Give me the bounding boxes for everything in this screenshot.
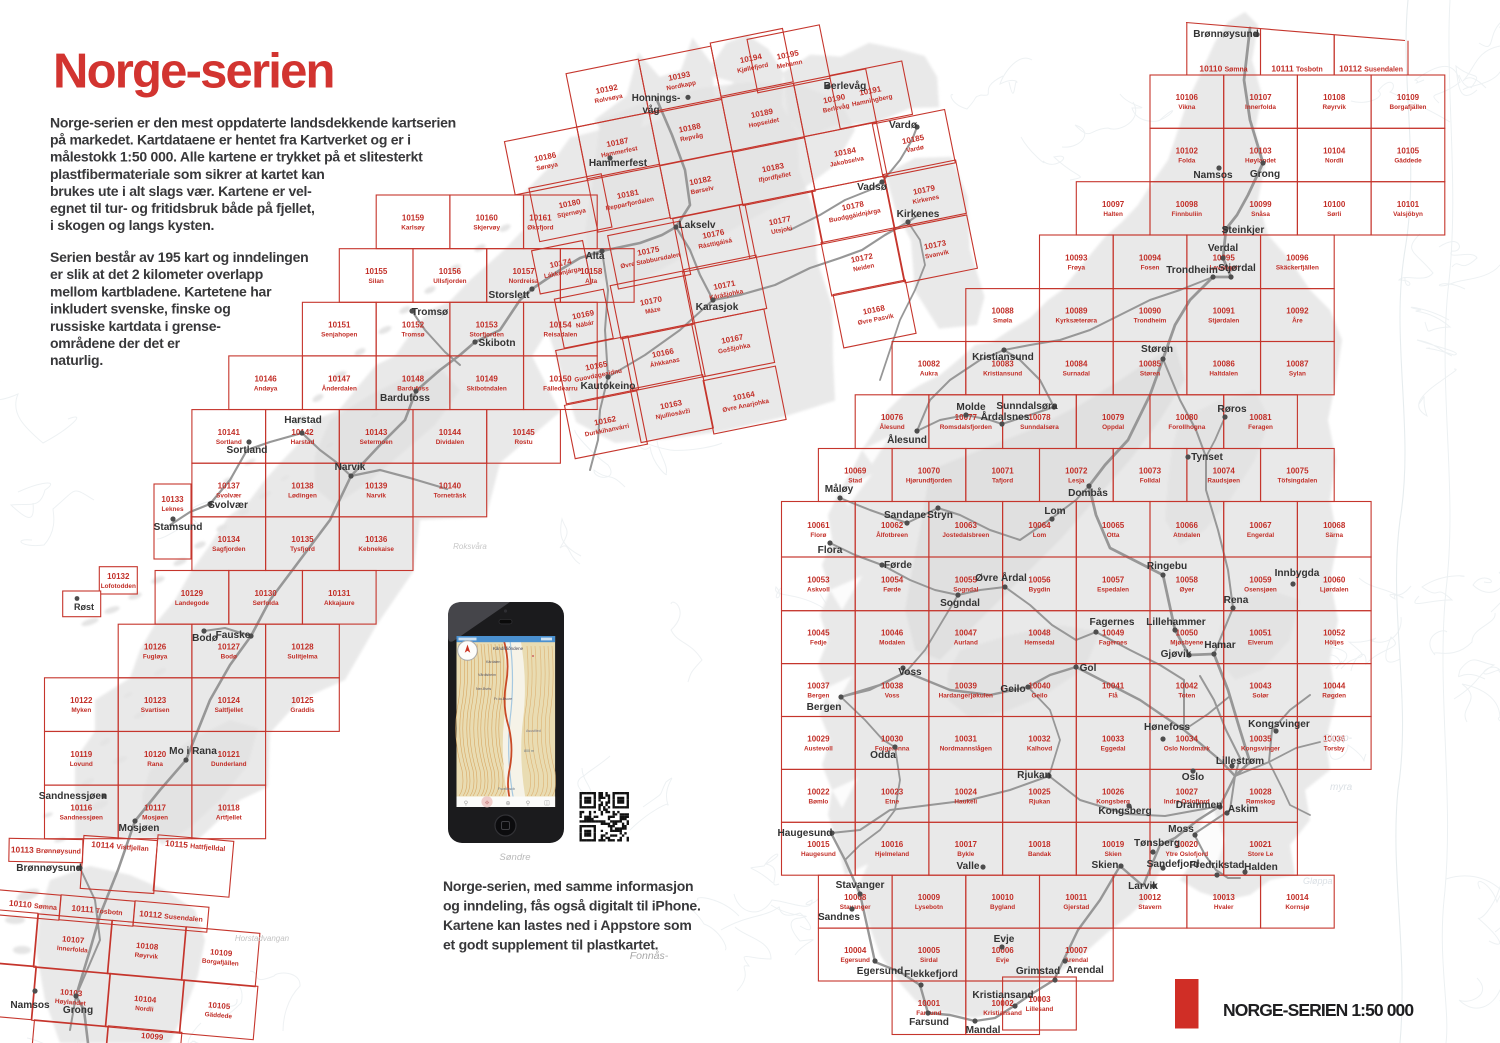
svg-text:Berlevåg: Berlevåg [824, 80, 867, 92]
svg-text:Serien består av 195 kart og i: Serien består av 195 kart og inndelingen [50, 249, 308, 265]
svg-text:10017: 10017 [955, 840, 978, 849]
svg-text:Trondheim: Trondheim [1134, 318, 1167, 325]
svg-text:Bygland: Bygland [990, 904, 1015, 911]
svg-text:10021: 10021 [1249, 840, 1272, 849]
svg-text:Flora: Flora [818, 545, 843, 556]
svg-text:Espedalen: Espedalen [1097, 586, 1129, 593]
svg-text:10028: 10028 [1249, 787, 1272, 796]
svg-text:10140: 10140 [439, 482, 462, 491]
svg-text:Førde: Førde [884, 560, 912, 571]
svg-text:Torsby: Torsby [1324, 746, 1345, 753]
svg-text:Fr-to-Bsure: Fr-to-Bsure [494, 697, 512, 701]
svg-text:Tønsberg: Tønsberg [1134, 838, 1180, 849]
svg-text:Senjahopen: Senjahopen [321, 332, 357, 339]
svg-text:Sunndalsøra: Sunndalsøra [1020, 424, 1059, 431]
svg-text:10064: 10064 [1028, 521, 1051, 530]
svg-text:Åre: Åre [1292, 316, 1303, 325]
svg-text:Hardangerjøkulen: Hardangerjøkulen [939, 693, 993, 700]
svg-text:Lakselv: Lakselv [678, 220, 715, 231]
svg-text:Skibotn: Skibotn [478, 338, 515, 349]
svg-text:Bodø: Bodø [221, 654, 237, 661]
svg-text:Drammen: Drammen [1176, 800, 1223, 811]
svg-text:10124: 10124 [218, 696, 241, 705]
svg-text:Ånderdalen: Ånderdalen [322, 383, 357, 392]
svg-text:Artfjellet: Artfjellet [216, 815, 243, 822]
svg-text:i skogen og langs kysten.: i skogen og langs kysten. [50, 217, 214, 233]
svg-text:og inndeling, fås også digital: og inndeling, fås også digitalt til iPho… [443, 898, 701, 914]
svg-text:Lillesand: Lillesand [1026, 1006, 1054, 1013]
svg-text:Bergen: Bergen [807, 702, 842, 713]
svg-text:10156: 10156 [439, 267, 462, 276]
svg-text:Sørli: Sørli [1327, 211, 1341, 218]
svg-text:Atndalen: Atndalen [1173, 532, 1200, 539]
svg-text:Kalhovd: Kalhovd [1027, 746, 1052, 753]
svg-text:10058: 10058 [1176, 575, 1199, 584]
svg-text:10151: 10151 [328, 321, 351, 330]
svg-text:Fredrikstad: Fredrikstad [1190, 860, 1245, 871]
svg-text:våg: våg [643, 105, 660, 116]
svg-text:10056: 10056 [1028, 575, 1051, 584]
svg-text:10130: 10130 [254, 589, 277, 598]
svg-text:Voss: Voss [885, 693, 900, 700]
svg-text:Nordmannslågen: Nordmannslågen [940, 745, 992, 753]
svg-text:Støren: Støren [1141, 344, 1173, 355]
svg-text:Hemsedal: Hemsedal [1024, 640, 1054, 647]
svg-text:10098: 10098 [1176, 200, 1199, 209]
svg-text:Skjervøy: Skjervøy [473, 224, 500, 231]
svg-text:Rena: Rena [1224, 595, 1249, 606]
svg-text:10015: 10015 [807, 840, 830, 849]
svg-text:Lom: Lom [1033, 532, 1047, 539]
svg-text:Kristiansand: Kristiansand [972, 990, 1033, 1001]
svg-text:Gløppa: Gløppa [1303, 876, 1333, 886]
svg-text:10072: 10072 [1065, 467, 1088, 476]
svg-text:Geilo: Geilo [1032, 693, 1048, 700]
svg-text:er slik at det 2 kilometer ove: er slik at det 2 kilometer overlapp [50, 266, 263, 282]
svg-text:Namsos: Namsos [10, 1000, 50, 1011]
svg-text:Store Le: Store Le [1248, 851, 1274, 858]
svg-text:10057: 10057 [1102, 575, 1125, 584]
svg-text:10032: 10032 [1028, 735, 1051, 744]
svg-text:Kristiansund: Kristiansund [983, 371, 1022, 378]
svg-text:⊕: ⊕ [505, 801, 510, 807]
svg-text:10134: 10134 [218, 535, 241, 544]
svg-text:Valsjöbyn: Valsjöbyn [1393, 211, 1423, 218]
svg-text:10092: 10092 [1286, 307, 1309, 316]
svg-text:Aurland: Aurland [954, 640, 978, 647]
svg-text:Särna: Särna [1325, 532, 1343, 539]
svg-text:Innbygda: Innbygda [1275, 568, 1320, 579]
svg-text:Mandal: Mandal [966, 1025, 1001, 1036]
svg-text:Brønnøysund: Brønnøysund [16, 863, 82, 874]
svg-text:mellom kartbladene. Kartetene: mellom kartbladene. Kartetene har [50, 283, 272, 299]
svg-text:Evje: Evje [996, 957, 1010, 964]
svg-text:Halten: Halten [1103, 211, 1123, 218]
svg-text:Setermoen: Setermoen [360, 439, 393, 446]
svg-text:Torneträsk: Torneträsk [434, 493, 467, 500]
svg-text:Storslett: Storslett [489, 290, 531, 301]
svg-text:10152: 10152 [402, 321, 425, 330]
svg-text:Lillehammer: Lillehammer [1146, 617, 1206, 628]
svg-text:10136: 10136 [365, 535, 388, 544]
svg-text:Førde: Førde [883, 586, 901, 593]
svg-text:Skibotndalen: Skibotndalen [467, 385, 507, 392]
svg-text:Gol: Gol [1080, 663, 1097, 674]
svg-text:10061: 10061 [807, 521, 830, 530]
svg-text:Kyrksæterøra: Kyrksæterøra [1056, 318, 1098, 325]
svg-text:10008: 10008 [844, 893, 867, 902]
svg-text:Kongsvinger: Kongsvinger [1241, 746, 1281, 753]
svg-text:Stryn: Stryn [927, 510, 953, 521]
svg-text:10132: 10132 [107, 572, 130, 581]
svg-text:10040: 10040 [1028, 682, 1051, 691]
svg-text:Austevoll: Austevoll [804, 746, 833, 753]
svg-text:Sogndal: Sogndal [940, 598, 980, 609]
svg-text:Glopp-: Glopp- [1322, 733, 1353, 744]
svg-text:Odda: Odda [870, 750, 896, 761]
svg-text:Kåndšåðndene: Kåndšåðndene [493, 645, 524, 651]
svg-text:Egersund: Egersund [840, 957, 870, 964]
svg-text:⚲: ⚲ [526, 800, 530, 807]
svg-text:10126: 10126 [144, 643, 167, 652]
svg-text:10102: 10102 [1176, 147, 1199, 156]
svg-text:10160: 10160 [476, 213, 499, 222]
svg-text:Dombås: Dombås [1068, 487, 1108, 499]
svg-text:10047: 10047 [955, 629, 978, 638]
svg-text:Tysfjord: Tysfjord [290, 546, 315, 553]
svg-text:10048: 10048 [1028, 629, 1051, 638]
svg-text:10066: 10066 [1176, 521, 1199, 530]
svg-text:Andøya: Andøya [254, 385, 278, 392]
svg-text:Halden: Halden [1244, 862, 1278, 873]
svg-text:10085: 10085 [1139, 360, 1162, 369]
svg-text:10053: 10053 [807, 575, 830, 584]
svg-text:10052: 10052 [1323, 629, 1346, 638]
svg-text:10025: 10025 [1028, 787, 1051, 796]
svg-text:Norge-serien er den mest oppda: Norge-serien er den mest oppdaterte land… [50, 115, 456, 131]
svg-text:10091: 10091 [1213, 307, 1236, 316]
svg-text:Forollhogna: Forollhogna [1168, 424, 1205, 431]
svg-text:10081: 10081 [1249, 413, 1272, 422]
svg-text:10127: 10127 [218, 643, 241, 652]
svg-text:10157: 10157 [512, 267, 535, 276]
svg-text:Gjøvik: Gjøvik [1161, 649, 1192, 660]
svg-text:10146: 10146 [254, 374, 277, 383]
svg-text:10078: 10078 [1028, 413, 1051, 422]
svg-text:Bykle: Bykle [957, 851, 974, 858]
svg-text:10060: 10060 [1323, 575, 1346, 584]
svg-text:Dividalen: Dividalen [436, 439, 465, 446]
svg-text:10067: 10067 [1249, 521, 1272, 530]
svg-text:Reisadalen: Reisadalen [544, 332, 578, 339]
svg-text:Haugesund: Haugesund [801, 851, 836, 858]
svg-text:Skien: Skien [1092, 860, 1119, 871]
svg-text:Nordreisa: Nordreisa [509, 278, 539, 285]
svg-text:10075: 10075 [1286, 467, 1309, 476]
svg-text:Alta: Alta [585, 251, 604, 262]
svg-text:10051: 10051 [1249, 629, 1272, 638]
svg-text:Svartisen: Svartisen [141, 707, 170, 714]
svg-text:Stavanger: Stavanger [836, 880, 885, 891]
svg-text:Fsvstlnscb: Fsvstlnscb [498, 787, 515, 791]
svg-text:Bygdin: Bygdin [1029, 586, 1051, 593]
svg-text:10071: 10071 [991, 467, 1014, 476]
svg-text:Valle: Valle [956, 861, 979, 872]
svg-text:10019: 10019 [1102, 840, 1125, 849]
svg-text:10042: 10042 [1176, 682, 1199, 691]
svg-text:10121: 10121 [218, 750, 241, 759]
svg-text:Horstadvangan: Horstadvangan [235, 934, 290, 943]
svg-text:Svolvær: Svolvær [208, 500, 248, 511]
svg-text:10122: 10122 [70, 696, 93, 705]
svg-text:Flå: Flå [1108, 692, 1118, 700]
svg-text:10123: 10123 [144, 696, 167, 705]
svg-text:Fálledearru: Fálledearru [543, 385, 578, 392]
svg-text:naturlig.: naturlig. [50, 352, 103, 368]
svg-text:plastfibermateriale som sikrer: plastfibermateriale som sikrer at kartet… [50, 166, 325, 182]
svg-text:10039: 10039 [955, 682, 978, 691]
svg-text:Asustlted: Asustlted [526, 729, 541, 733]
svg-text:Måløy: Måløy [825, 483, 854, 495]
svg-text:Grong: Grong [63, 1005, 93, 1016]
svg-text:Romsdalsfjorden: Romsdalsfjorden [940, 424, 992, 431]
svg-text:10105: 10105 [1397, 147, 1420, 156]
svg-text:Norge-serien: Norge-serien [53, 45, 334, 99]
svg-text:Bardufoss: Bardufoss [380, 393, 430, 404]
svg-text:Saltfjellet: Saltfjellet [215, 707, 244, 714]
svg-text:Vårdlsheim: Vårdlsheim [478, 673, 496, 677]
svg-text:Askim: Askim [1228, 804, 1258, 815]
svg-text:10101: 10101 [1397, 200, 1420, 209]
svg-text:10089: 10089 [1065, 307, 1088, 316]
svg-text:10001: 10001 [918, 999, 941, 1008]
svg-text:◫: ◫ [544, 801, 550, 807]
svg-text:10070: 10070 [918, 467, 941, 476]
svg-text:Arendal: Arendal [1064, 957, 1088, 964]
svg-text:Geilo: Geilo [1000, 684, 1025, 695]
svg-text:Lofotodden: Lofotodden [101, 583, 136, 590]
svg-text:10049: 10049 [1102, 629, 1125, 638]
svg-text:Bandak: Bandak [1028, 851, 1052, 858]
svg-text:Roksvåra: Roksvåra [453, 542, 487, 551]
svg-text:10150: 10150 [549, 374, 572, 383]
svg-text:10082: 10082 [918, 360, 941, 369]
svg-text:Mosjøen: Mosjøen [142, 815, 168, 822]
svg-text:10029: 10029 [807, 735, 830, 744]
svg-text:10022: 10022 [807, 787, 830, 796]
svg-text:Feragen: Feragen [1248, 424, 1273, 431]
svg-text:Kärdalen: Kärdalen [486, 660, 500, 664]
svg-text:Moss: Moss [1168, 824, 1194, 835]
svg-text:Innerfolda: Innerfolda [1245, 104, 1276, 111]
svg-text:Folldal: Folldal [1140, 478, 1161, 485]
svg-text:Aukra: Aukra [920, 371, 939, 378]
svg-text:Oslo Nordmark: Oslo Nordmark [1164, 746, 1211, 753]
svg-text:10076: 10076 [881, 413, 904, 422]
svg-text:Sortland: Sortland [227, 445, 268, 456]
svg-text:Otta: Otta [1107, 532, 1120, 539]
svg-text:10014: 10014 [1286, 893, 1309, 902]
svg-text:Graddis: Graddis [290, 707, 315, 714]
svg-text:Lovund: Lovund [70, 761, 93, 768]
svg-text:Grimstad: Grimstad [1016, 966, 1060, 977]
svg-text:Tromsø: Tromsø [401, 332, 424, 339]
svg-text:Sylan: Sylan [1289, 371, 1306, 378]
svg-text:10141: 10141 [218, 428, 241, 437]
svg-text:Frøya: Frøya [1068, 264, 1086, 271]
svg-text:Farsund: Farsund [909, 1017, 949, 1028]
svg-text:Svolvær: Svolvær [216, 493, 242, 500]
svg-text:Toten: Toten [1178, 693, 1195, 700]
svg-text:10088: 10088 [991, 307, 1014, 316]
svg-text:10159: 10159 [402, 213, 425, 222]
svg-text:Harstad: Harstad [284, 415, 322, 426]
svg-text:Ljørdalen: Ljørdalen [1320, 586, 1349, 593]
svg-text:Lesja: Lesja [1068, 478, 1085, 485]
svg-text:Stjørdal: Stjørdal [1218, 263, 1256, 274]
svg-text:Elverum: Elverum [1248, 640, 1274, 647]
svg-text:Oppdal: Oppdal [1102, 424, 1124, 431]
svg-text:myra: myra [1330, 782, 1353, 793]
svg-text:Rana: Rana [147, 761, 163, 768]
svg-text:Steinkjer: Steinkjer [1222, 225, 1265, 236]
svg-text:10031: 10031 [955, 735, 978, 744]
svg-text:Akkajaure: Akkajaure [324, 600, 355, 607]
svg-text:10096: 10096 [1286, 253, 1309, 262]
svg-text:10149: 10149 [476, 374, 499, 383]
svg-text:10055: 10055 [955, 575, 978, 584]
svg-text:10044: 10044 [1323, 682, 1346, 691]
svg-text:Norge-serien, med samme inform: Norge-serien, med samme informasjon [443, 878, 693, 894]
svg-text:Myken: Myken [71, 707, 91, 714]
svg-text:Honnings-: Honnings- [632, 93, 680, 104]
svg-text:Sunndalsøra: Sunndalsøra [996, 401, 1058, 412]
svg-text:10161: 10161 [529, 213, 552, 222]
svg-text:Namsos: Namsos [1193, 170, 1233, 181]
svg-text:Sandnessjøen: Sandnessjøen [60, 815, 103, 822]
svg-text:Bømlo: Bømlo [808, 798, 828, 805]
svg-text:Sirdal: Sirdal [920, 957, 938, 964]
svg-text:10097: 10097 [1102, 200, 1125, 209]
svg-text:Lillestrøm: Lillestrøm [1216, 756, 1264, 767]
svg-text:Stavern: Stavern [1138, 904, 1162, 911]
svg-text:Sandnessjøen: Sandnessjøen [39, 791, 107, 802]
svg-text:10133: 10133 [161, 495, 184, 504]
svg-text:Surnadal: Surnadal [1063, 371, 1091, 378]
svg-text:10045: 10045 [807, 629, 830, 638]
svg-text:Hammerfest: Hammerfest [589, 158, 648, 169]
svg-text:10144: 10144 [439, 428, 462, 437]
svg-text:Stamsund: Stamsund [154, 522, 203, 533]
svg-text:Modalen: Modalen [879, 640, 905, 647]
svg-text:Alta: Alta [585, 278, 598, 285]
svg-text:Mosjøen: Mosjøen [119, 823, 160, 834]
svg-text:Rjukan: Rjukan [1029, 798, 1050, 805]
svg-text:russiske kartdata i grense-: russiske kartdata i grense- [50, 318, 221, 334]
svg-text:10005: 10005 [918, 946, 941, 955]
svg-text:⚲: ⚲ [464, 800, 468, 807]
svg-text:Kirkenes: Kirkenes [897, 209, 940, 220]
svg-text:Haukeli: Haukeli [954, 798, 977, 805]
svg-text:10079: 10079 [1102, 413, 1125, 422]
svg-text:Borgafjällen: Borgafjällen [1390, 104, 1427, 111]
svg-text:Silan: Silan [369, 278, 384, 285]
svg-text:Narvik: Narvik [366, 493, 386, 500]
svg-text:Grong: Grong [1250, 169, 1280, 180]
svg-text:Ytre Oslofjord: Ytre Oslofjord [1165, 851, 1208, 858]
svg-text:10118: 10118 [218, 804, 240, 813]
svg-text:Fauske: Fauske [216, 630, 251, 641]
svg-text:Eggedal: Eggedal [1101, 746, 1126, 753]
svg-text:10125: 10125 [291, 696, 314, 705]
svg-text:Kartene kan lastes ned i Appst: Kartene kan lastes ned i Appstore som [443, 917, 692, 933]
svg-text:Dunderland: Dunderland [211, 761, 247, 768]
svg-text:Finnbuliin: Finnbuliin [1172, 211, 1203, 218]
svg-text:Sogndal: Sogndal [953, 586, 978, 593]
svg-text:et godt supplement til plastka: et godt supplement til plastkartet. [443, 937, 658, 953]
svg-text:Askvoll: Askvoll [807, 586, 830, 593]
svg-text:10059: 10059 [1249, 575, 1272, 584]
svg-text:Engerdal: Engerdal [1247, 532, 1275, 539]
svg-text:Ålesund: Ålesund [887, 433, 927, 446]
svg-text:Vadsø: Vadsø [857, 182, 888, 193]
svg-text:Gäddede: Gäddede [1394, 158, 1422, 165]
svg-text:10027: 10027 [1176, 787, 1199, 796]
svg-text:Oslo: Oslo [1182, 772, 1204, 783]
svg-text:10026: 10026 [1102, 787, 1125, 796]
svg-text:Leknes: Leknes [161, 506, 183, 513]
svg-text:Kongsvinger: Kongsvinger [1248, 719, 1310, 730]
svg-text:10034: 10034 [1176, 735, 1199, 744]
svg-text:Töfsingdalen: Töfsingdalen [1278, 478, 1318, 485]
svg-text:10068: 10068 [1323, 521, 1346, 530]
svg-text:Årdalsnes: Årdalsnes [981, 410, 1030, 423]
svg-text:Nordli: Nordli [1325, 158, 1344, 165]
svg-text:Stavanger: Stavanger [840, 904, 871, 911]
svg-text:10069: 10069 [844, 467, 867, 476]
svg-text:10023: 10023 [881, 787, 904, 796]
svg-text:10148: 10148 [402, 374, 425, 383]
svg-text:Arendal: Arendal [1066, 965, 1104, 976]
svg-text:10013: 10013 [1213, 893, 1236, 902]
svg-text:Ringebu: Ringebu [1147, 561, 1187, 572]
svg-text:Røgden: Røgden [1322, 693, 1346, 700]
svg-text:10016: 10016 [881, 840, 904, 849]
svg-text:Haugesund: Haugesund [778, 828, 833, 839]
svg-text:Øksfjord: Øksfjord [527, 224, 553, 231]
svg-text:10116: 10116 [70, 804, 92, 813]
svg-text:Florø: Florø [810, 532, 826, 539]
svg-text:Hønefoss: Hønefoss [1144, 722, 1190, 733]
svg-text:Harstad: Harstad [291, 439, 315, 446]
svg-text:10155: 10155 [365, 267, 388, 276]
svg-text:Kongsberg: Kongsberg [1096, 798, 1130, 805]
svg-text:Fosen: Fosen [1141, 264, 1160, 271]
svg-text:10137: 10137 [218, 482, 241, 491]
svg-text:10041: 10041 [1102, 682, 1125, 691]
svg-text:Hamar: Hamar [1204, 640, 1235, 651]
svg-text:800 m: 800 m [524, 749, 534, 753]
svg-text:Ålfotbreen: Ålfotbreen [876, 530, 908, 539]
svg-text:Fedje: Fedje [810, 640, 827, 647]
svg-text:Lom: Lom [1044, 506, 1065, 517]
svg-text:10080: 10080 [1176, 413, 1199, 422]
svg-text:Mjøsbyene: Mjøsbyene [1170, 640, 1203, 647]
svg-text:10063: 10063 [955, 521, 978, 530]
svg-text:Skien: Skien [1105, 851, 1122, 858]
svg-text:Osensjøen: Osensjøen [1244, 586, 1277, 593]
svg-text:Voss: Voss [898, 667, 922, 678]
